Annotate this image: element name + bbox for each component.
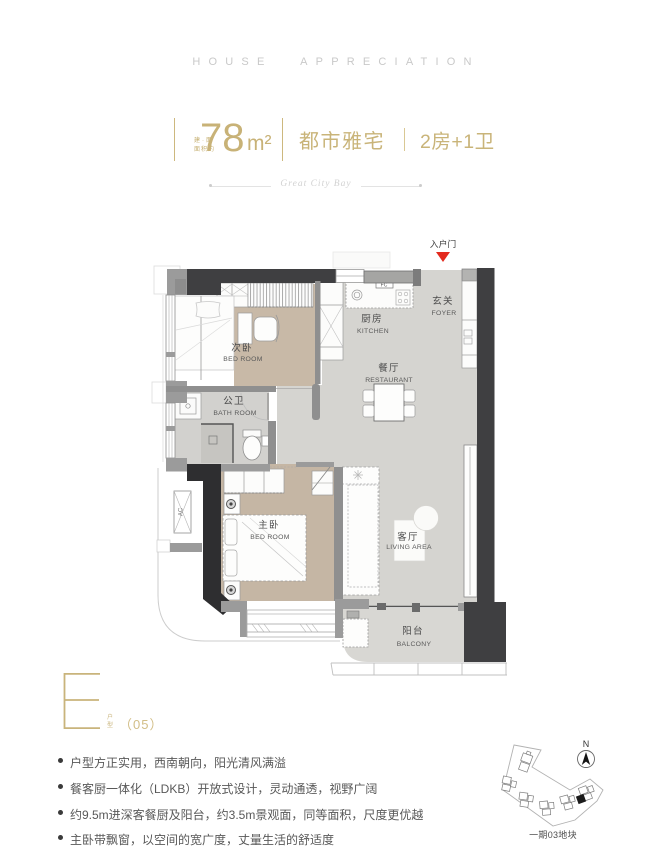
svg-text:RESTAURANT: RESTAURANT xyxy=(365,377,413,384)
svg-text:BED ROOM: BED ROOM xyxy=(223,356,262,363)
svg-text:主卧: 主卧 xyxy=(258,519,279,531)
svg-text:公卫: 公卫 xyxy=(223,396,244,407)
svg-text:厨房: 厨房 xyxy=(361,313,382,325)
svg-text:BALCONY: BALCONY xyxy=(397,641,432,648)
svg-text:阳台: 阳台 xyxy=(402,625,423,637)
svg-text:KITCHEN: KITCHEN xyxy=(357,328,389,335)
svg-text:餐厅: 餐厅 xyxy=(378,362,399,374)
svg-text:客厅: 客厅 xyxy=(397,531,418,543)
svg-text:LIVING AREA: LIVING AREA xyxy=(386,544,432,551)
svg-text:N: N xyxy=(583,739,590,749)
svg-text:玄关: 玄关 xyxy=(432,295,453,307)
svg-text:一期03地块: 一期03地块 xyxy=(529,829,577,840)
svg-text:FOYER: FOYER xyxy=(432,310,457,317)
svg-text:BATH ROOM: BATH ROOM xyxy=(213,410,256,417)
svg-text:次卧: 次卧 xyxy=(231,342,252,354)
svg-text:AC: AC xyxy=(179,507,185,516)
svg-text:BED ROOM: BED ROOM xyxy=(250,534,289,541)
svg-text:入户门: 入户门 xyxy=(430,238,457,249)
